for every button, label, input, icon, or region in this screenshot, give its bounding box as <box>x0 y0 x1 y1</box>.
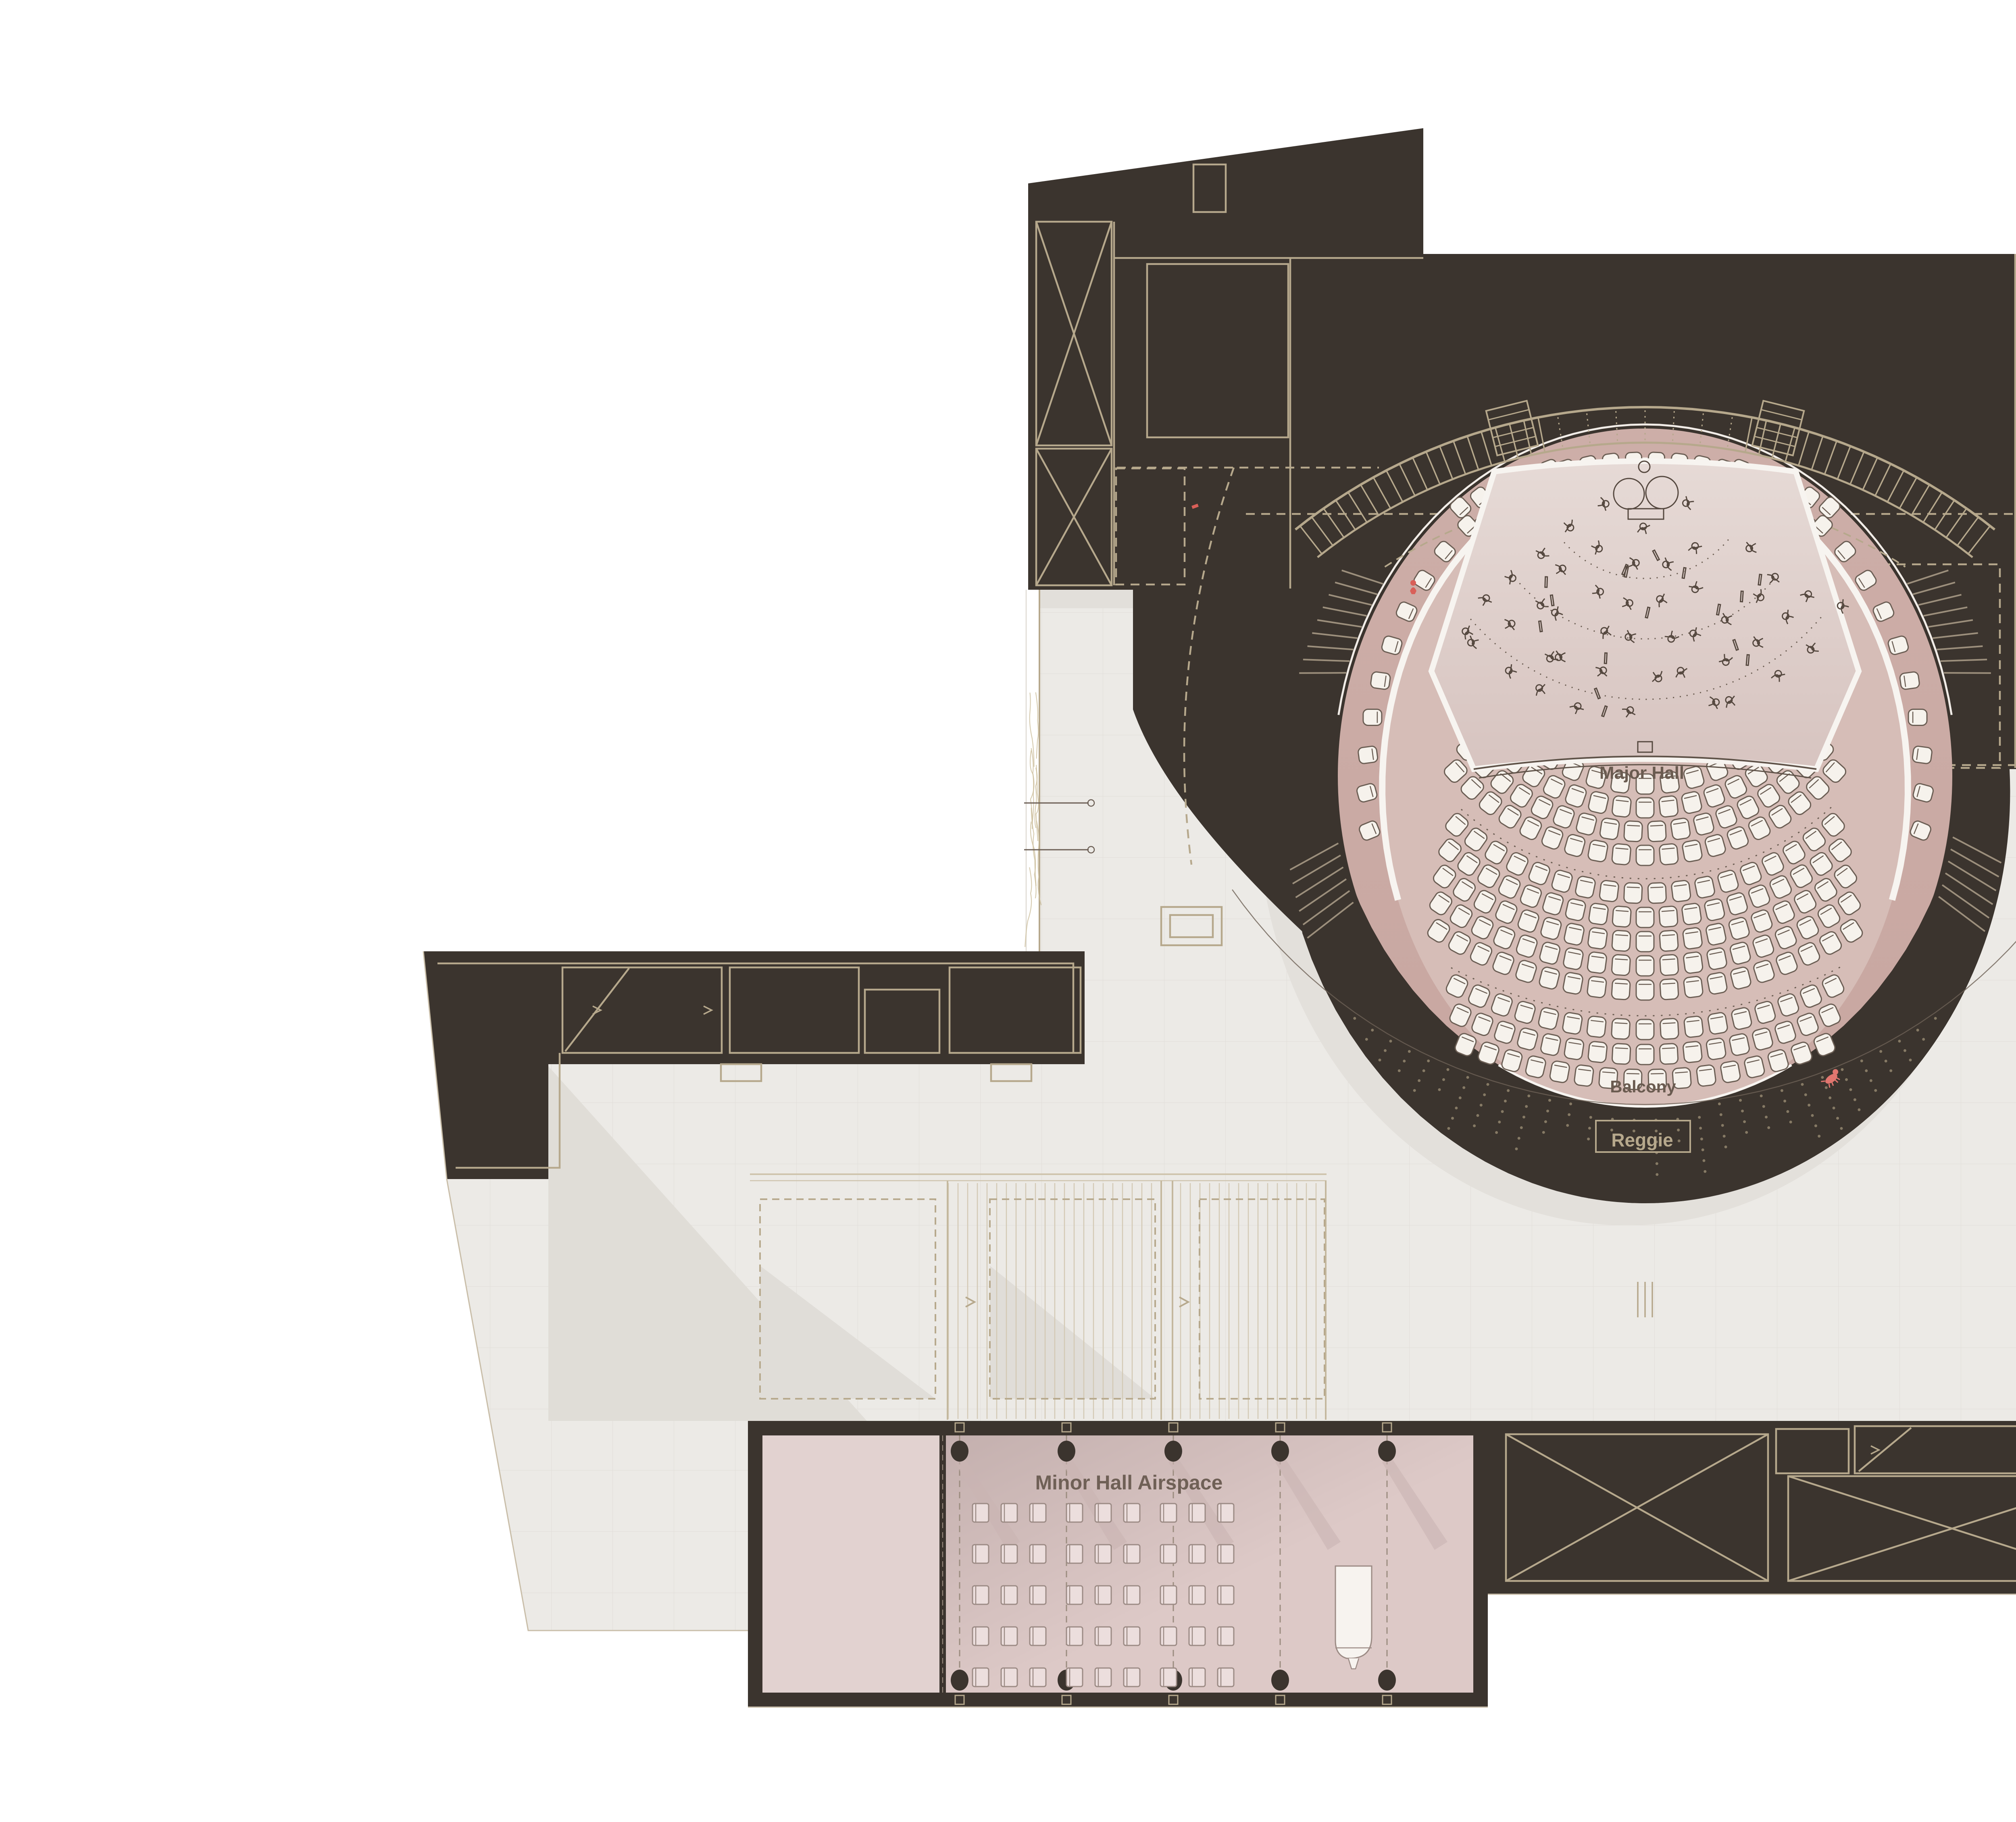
seat <box>1563 922 1585 946</box>
seat <box>1030 1504 1046 1522</box>
column-icon <box>1271 1441 1289 1462</box>
seat <box>1636 1044 1654 1065</box>
balcony-label: Balcony <box>1610 1077 1676 1096</box>
seat <box>973 1504 989 1522</box>
seat <box>1681 903 1702 926</box>
seat <box>1124 1504 1140 1522</box>
column-icon <box>1271 1670 1289 1691</box>
seat <box>1660 1043 1679 1064</box>
seat <box>1095 1668 1111 1687</box>
column-icon <box>951 1441 968 1462</box>
seat <box>1189 1586 1205 1604</box>
seat <box>1658 795 1678 817</box>
seat <box>1160 1504 1177 1522</box>
floor-plan-canvas: Reggie Major Hall Balcony Minor Hall Air… <box>0 0 2016 1822</box>
seat <box>1612 930 1631 951</box>
seat <box>1612 1043 1631 1064</box>
seat <box>1636 980 1654 1000</box>
seat <box>1660 955 1679 976</box>
seat <box>1599 880 1619 902</box>
seat <box>1218 1586 1234 1604</box>
seat <box>1659 930 1678 951</box>
seat <box>1001 1504 1017 1522</box>
seat <box>1660 979 1679 1000</box>
seat <box>1670 817 1691 840</box>
seat <box>1682 839 1703 862</box>
column-icon <box>951 1670 968 1691</box>
seat <box>1218 1545 1234 1563</box>
seat <box>1612 979 1631 1000</box>
seat <box>1587 839 1609 862</box>
seat <box>1636 932 1654 952</box>
seat <box>973 1586 989 1604</box>
seat <box>1704 898 1725 921</box>
floor-plan-page: Reggie Major Hall Balcony Minor Hall Air… <box>0 0 2016 1822</box>
seat <box>1636 956 1654 976</box>
seat <box>1636 798 1654 818</box>
seat <box>1189 1627 1205 1645</box>
seat <box>1612 906 1631 927</box>
seat <box>1599 817 1620 840</box>
seat <box>1694 876 1715 899</box>
column-icon <box>1164 1441 1182 1462</box>
stage <box>1431 461 1859 769</box>
seat <box>1030 1627 1046 1645</box>
seat <box>1370 671 1391 690</box>
seat <box>1683 951 1703 973</box>
seat <box>1671 880 1691 902</box>
seat <box>1574 876 1596 899</box>
seat <box>1659 843 1679 865</box>
seat <box>1564 1038 1584 1060</box>
seat <box>1124 1545 1140 1563</box>
column-icon <box>1058 1441 1075 1462</box>
seat <box>1587 1016 1606 1038</box>
seat <box>1574 1065 1594 1087</box>
seat <box>1636 907 1654 928</box>
seat <box>1705 922 1727 946</box>
seat <box>1124 1586 1140 1604</box>
seat <box>1030 1545 1046 1563</box>
seat <box>1562 1012 1583 1035</box>
seat <box>1707 972 1728 995</box>
seat <box>1912 746 1933 764</box>
seat <box>1899 671 1920 690</box>
seat <box>1683 976 1704 998</box>
seat <box>1636 845 1654 865</box>
seat <box>1587 951 1607 973</box>
seat <box>1549 1060 1570 1083</box>
seat <box>1358 746 1378 764</box>
seat <box>1218 1504 1234 1522</box>
seat <box>1908 709 1927 725</box>
reggie-label: Reggie <box>1611 1129 1673 1150</box>
seat <box>1066 1668 1083 1687</box>
seat <box>1124 1627 1140 1645</box>
seat <box>1636 1019 1654 1040</box>
seat <box>1562 972 1584 995</box>
seat <box>1660 1018 1679 1039</box>
seat <box>1066 1545 1083 1563</box>
seat <box>1706 1038 1727 1060</box>
seat <box>1095 1586 1111 1604</box>
seat <box>1066 1504 1083 1522</box>
seat <box>1160 1668 1177 1687</box>
seat <box>1659 906 1678 927</box>
minor-hall-label: Minor Hall Airspace <box>1035 1471 1223 1494</box>
seat <box>1363 709 1382 725</box>
seat <box>1648 882 1666 903</box>
seat <box>1587 976 1607 998</box>
seat <box>1189 1504 1205 1522</box>
seat <box>1588 1041 1608 1063</box>
seat <box>1030 1586 1046 1604</box>
column-icon <box>1378 1670 1396 1691</box>
seat <box>1647 821 1666 842</box>
seat <box>1160 1627 1177 1645</box>
seat <box>1729 1033 1750 1056</box>
seat <box>1624 821 1642 842</box>
seat <box>1218 1668 1234 1687</box>
seat <box>1030 1668 1046 1687</box>
seat <box>1683 1041 1702 1063</box>
seat <box>1696 1065 1716 1087</box>
major-hall-label: Major Hall <box>1599 763 1684 783</box>
seat <box>1612 843 1631 865</box>
seat <box>1720 1060 1741 1083</box>
seat <box>1189 1668 1205 1687</box>
seat <box>973 1545 989 1563</box>
seat <box>1124 1668 1140 1687</box>
column-icon <box>1378 1441 1396 1462</box>
seat <box>1587 927 1608 950</box>
seat <box>1612 955 1631 976</box>
seat <box>1588 903 1609 926</box>
seat <box>1706 947 1728 970</box>
seat <box>1218 1627 1234 1645</box>
seat <box>1095 1545 1111 1563</box>
seat <box>1001 1586 1017 1604</box>
seat <box>1001 1627 1017 1645</box>
seat <box>1095 1504 1111 1522</box>
bottom-right-mass <box>1488 1421 2016 1594</box>
minor-hall: Minor Hall Airspace <box>762 1423 1473 1704</box>
seat <box>1160 1586 1177 1604</box>
seat <box>1624 882 1642 903</box>
seat <box>1565 898 1587 921</box>
seat <box>1682 927 1703 950</box>
seat <box>1001 1668 1017 1687</box>
seat <box>1707 1012 1728 1035</box>
grand-piano-icon <box>1335 1566 1372 1669</box>
seat <box>1611 1018 1630 1039</box>
seat <box>1001 1545 1017 1563</box>
minor-hall-vestibule <box>762 1435 939 1693</box>
seat <box>1066 1586 1083 1604</box>
seat <box>1612 795 1631 817</box>
seat <box>1066 1627 1083 1645</box>
seat <box>1562 947 1584 970</box>
seat <box>973 1627 989 1645</box>
seat <box>1684 1016 1704 1038</box>
seat <box>1160 1545 1177 1563</box>
seat <box>1540 1033 1561 1056</box>
seat <box>973 1668 989 1687</box>
seat <box>1095 1627 1111 1645</box>
seat <box>1189 1545 1205 1563</box>
